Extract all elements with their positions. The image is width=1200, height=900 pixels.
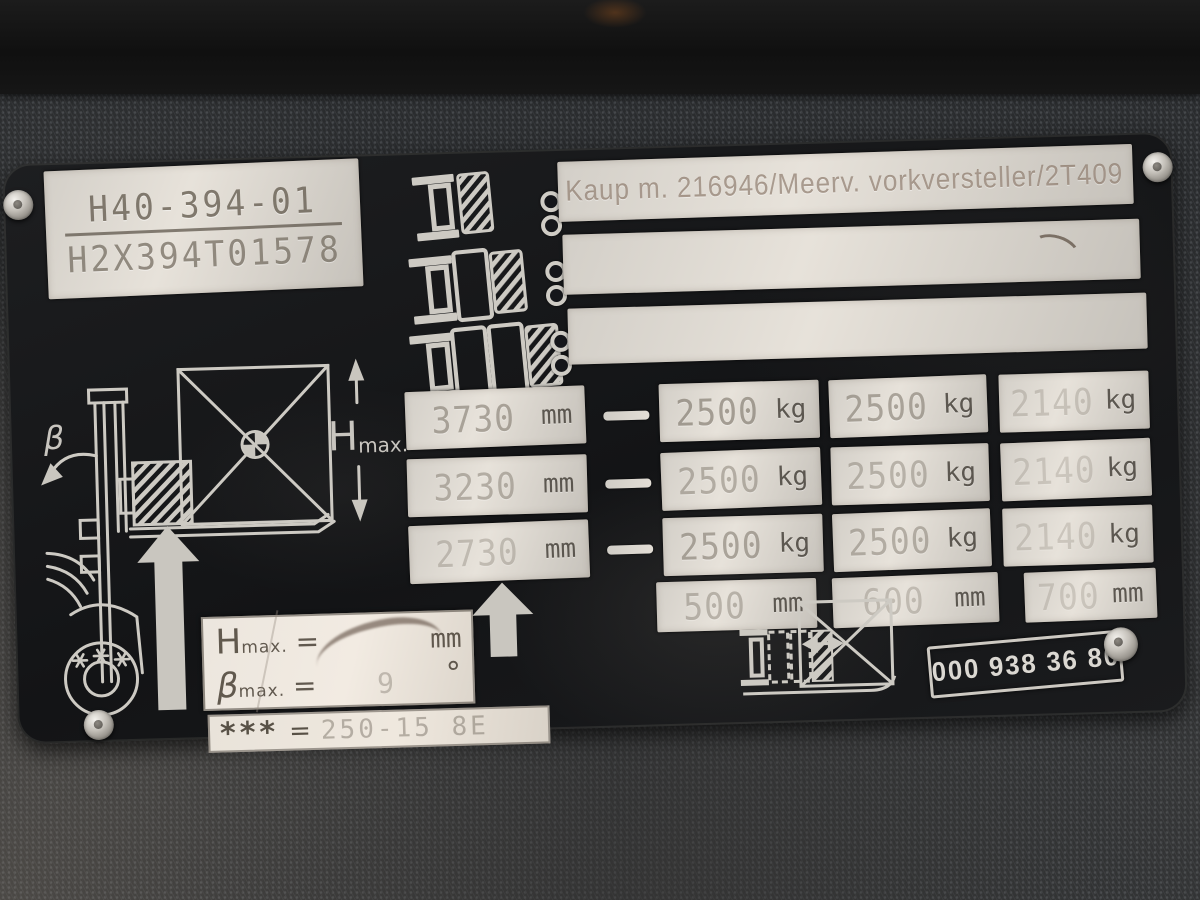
equals-sign: = <box>289 716 312 747</box>
dashboard-edge <box>0 0 1200 94</box>
rivet-screw <box>3 190 34 221</box>
capacity-value: 2500 <box>660 456 777 503</box>
lift-height-cell: 3730 mm <box>404 385 586 450</box>
height-value: 3730 <box>405 395 542 443</box>
hmax-label: H <box>215 622 242 663</box>
load-center-unit: mm <box>954 582 999 614</box>
attachment-text: Kaup m. 216946/Meerv. vorkversteller/2T4… <box>558 158 1124 209</box>
carriage-arm <box>81 556 99 572</box>
capacity-value: 2140 <box>1002 513 1109 559</box>
height-unit: mm <box>543 468 588 499</box>
capacity-unit: kg <box>776 461 821 493</box>
equals-sign: = <box>295 625 319 659</box>
capacity-cell: 2140 kg <box>1000 438 1152 502</box>
capacity-cell: 2500 kg <box>832 508 992 572</box>
dash-separator <box>603 410 649 420</box>
tilt-angle-arrow <box>40 454 97 486</box>
capacity-value: 2500 <box>662 522 779 568</box>
capacity-unit: kg <box>1108 518 1153 549</box>
carriage-arm <box>80 520 98 538</box>
capacity-unit: kg <box>1106 452 1151 484</box>
spec-box: H max. = mm β max. = 9 ° <box>201 609 476 711</box>
capacity-cell: 2500 kg <box>662 514 824 576</box>
capacity-value: 2500 <box>831 452 946 498</box>
beta-row: β max. = 9 ° <box>216 660 463 711</box>
stars-label: *** <box>220 714 280 751</box>
fork-positioner-icon <box>737 595 912 708</box>
lift-height-cell: 3230 mm <box>407 454 589 517</box>
height-value: 2730 <box>408 529 545 577</box>
hmax-label-sub: max. <box>241 637 288 658</box>
load-center-unit: mm <box>1112 578 1157 610</box>
capacity-cell: 2500 kg <box>660 447 822 511</box>
capacity-cell: 2500 kg <box>830 443 990 505</box>
beta-unit: ° <box>444 656 463 691</box>
beta-value: 9 <box>326 665 445 701</box>
load-center-cell: 700 mm <box>1024 568 1158 623</box>
blank-strip-1 <box>562 219 1140 295</box>
lift-arrow-icon <box>136 525 203 711</box>
hmax-row: H max. = mm <box>215 616 462 667</box>
tire-size-value: 250-15 8E <box>321 711 490 746</box>
capacity-value: 2500 <box>832 517 947 564</box>
part-number: 000 938 36 80 <box>930 640 1121 688</box>
capacity-cell: 2140 kg <box>1002 504 1154 566</box>
beta-diagram-label: β <box>42 419 64 458</box>
tire-spec-strip: *** = 250-15 8E <box>208 705 551 753</box>
model-serial-label: H40-394-01 H2X394T01578 <box>43 158 363 299</box>
capacity-unit: kg <box>778 528 823 559</box>
capacity-value: 2140 <box>1000 447 1107 494</box>
model-number: H40-394-01 <box>87 178 317 230</box>
height-unit: mm <box>540 399 585 431</box>
equals-sign: = <box>293 669 317 703</box>
smudge-mark <box>311 611 443 667</box>
dash-separator <box>605 478 651 488</box>
capacity-unit: kg <box>1104 385 1149 416</box>
capacity-value: 2500 <box>828 383 943 430</box>
photo-background: H40-394-01 H2X394T01578 <box>0 0 1200 900</box>
beta-label: β <box>216 666 239 707</box>
blank-strip-2 <box>567 293 1147 365</box>
fork-load-1-icon <box>402 163 505 250</box>
serial-number: H2X394T01578 <box>67 227 343 281</box>
capacity-cell: 2140 kg <box>998 371 1150 433</box>
capacity-cell: 2500 kg <box>828 374 988 438</box>
height-value: 3230 <box>407 463 544 510</box>
capacity-value: 2140 <box>999 379 1106 425</box>
capacity-value: 2500 <box>659 389 776 435</box>
scratch-mark <box>1026 229 1083 274</box>
capacity-cell: 2500 kg <box>659 380 821 442</box>
rivet-screw <box>1142 152 1173 183</box>
mast <box>88 389 134 682</box>
hatched-load-block <box>133 461 193 525</box>
forklift-data-plate: H40-394-01 H2X394T01578 <box>2 132 1188 744</box>
capacity-unit: kg <box>942 388 987 420</box>
capacity-unit: kg <box>944 457 989 488</box>
rivet-screw <box>1103 627 1138 662</box>
capacity-unit: kg <box>946 522 991 554</box>
rust-smudge <box>575 0 655 42</box>
capacity-unit: kg <box>775 394 820 425</box>
height-unit: mm <box>544 533 589 565</box>
lift-height-cell: 2730 mm <box>408 519 590 584</box>
load-center-value: 700 <box>1024 573 1113 619</box>
dash-separator <box>607 544 653 554</box>
hmax-diagram-sub: max. <box>358 432 409 457</box>
hmax-diagram-label: H <box>327 414 358 461</box>
attachment-info-strip: Kaup m. 216946/Meerv. vorkversteller/2T4… <box>557 144 1134 222</box>
lift-arrow-icon <box>464 578 542 662</box>
part-number-box: 000 938 36 80 <box>927 630 1125 699</box>
